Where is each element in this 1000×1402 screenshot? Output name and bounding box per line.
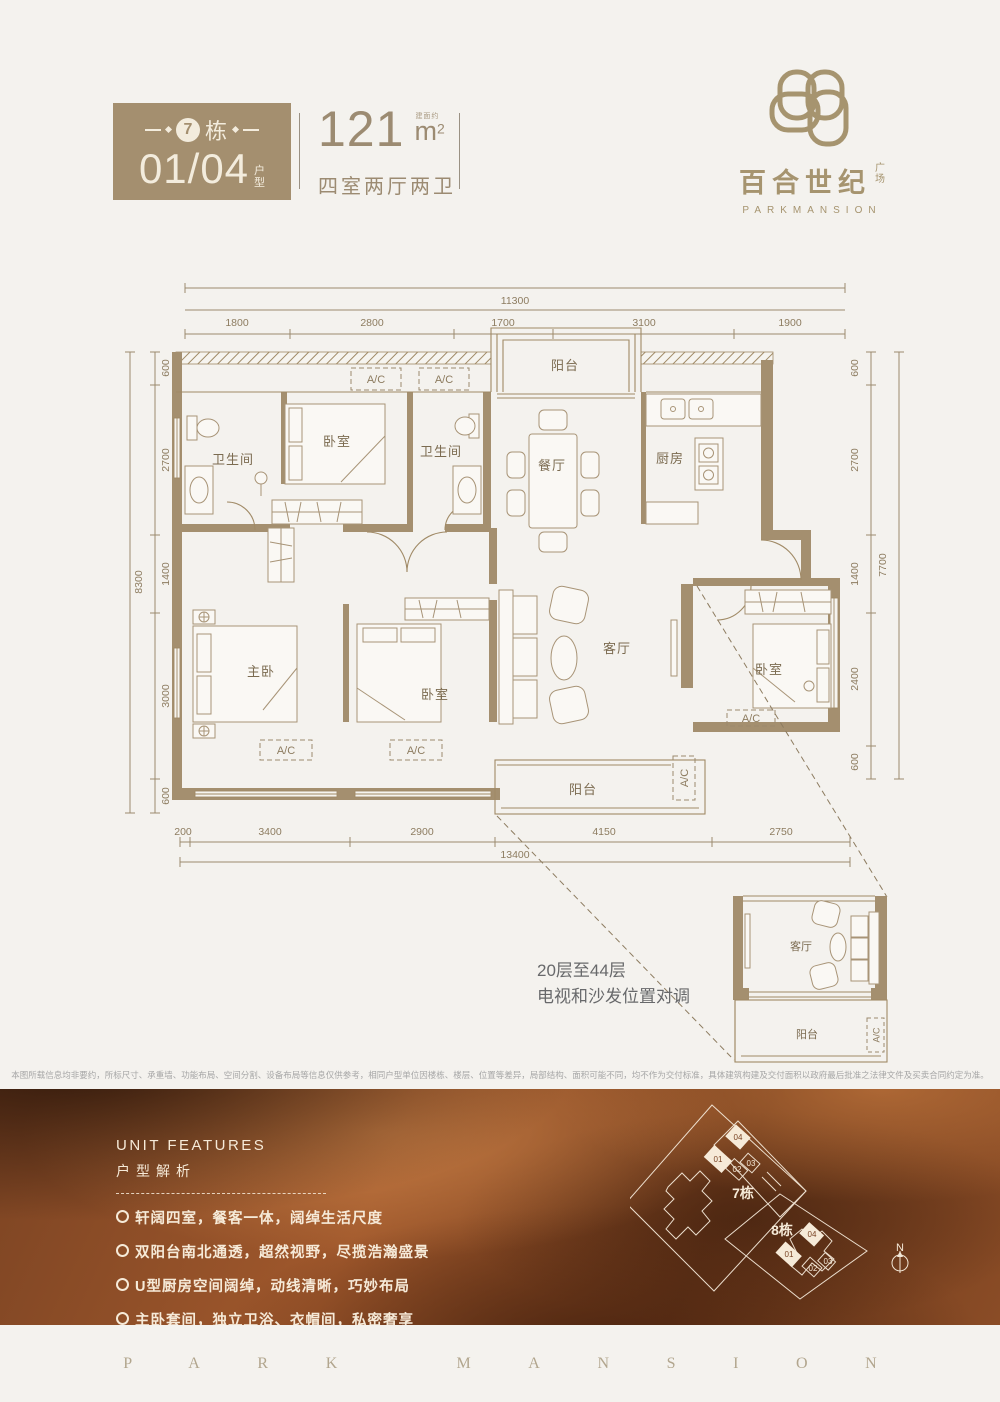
dim-left-3: 1400 [160, 562, 172, 586]
dim-top-1: 1800 [225, 317, 249, 329]
building-number: 7 [176, 118, 200, 142]
feature-text-2: 双阳台南北通透，超然视野，尽揽浩瀚盛景 [135, 1245, 430, 1261]
logo-name-en: PARKMANSION [698, 205, 926, 216]
floor-plan: 11300 1800 2800 1700 3100 1900 8300 600 … [105, 268, 925, 1085]
deco-line-right [243, 129, 259, 131]
header-divider-2 [459, 113, 460, 189]
feature-text-3: U型厨房空间阔绰，动线清晰，巧妙布局 [135, 1279, 410, 1295]
dim-top-3: 1700 [491, 317, 515, 329]
living-furniture [499, 585, 677, 726]
unit-code: 01/04 [139, 148, 249, 190]
ac-label-master: A/C [277, 745, 295, 757]
room-living: 客厅 [603, 641, 631, 656]
bed-mid [357, 624, 441, 722]
inset-plan: 客厅 阳台 A/C [733, 896, 887, 1062]
ac-label-bedmid: A/C [407, 745, 425, 757]
ac-label-top2: A/C [435, 374, 453, 386]
room-dining: 餐厅 [538, 458, 566, 473]
dim-left-1: 600 [160, 359, 172, 377]
footer: PARK MANSION [0, 1325, 1000, 1402]
feature-item-3: U型厨房空间阔绰，动线清晰，巧妙布局 [116, 1275, 430, 1296]
room-bath1: 卫生间 [212, 452, 254, 467]
features-block: UNIT FEATURES 户型解析 轩阔四室，餐客一体，阔绰生活尺度 双阳台南… [116, 1137, 430, 1330]
north-indicator: N [892, 1242, 908, 1273]
dim-top-5: 1900 [778, 317, 802, 329]
unit-7-04-label: 04 [734, 1133, 743, 1142]
logo-knot-icon [766, 68, 858, 150]
features-title-en: UNIT FEATURES [116, 1137, 430, 1154]
header-divider-1 [299, 113, 300, 189]
dim-right-4: 2400 [849, 667, 861, 691]
dim-left-4: 3000 [160, 684, 172, 708]
deco-line-left [145, 129, 161, 131]
unit-7-03-label: 03 [747, 1159, 756, 1168]
dim-bottom-4: 4150 [592, 826, 616, 838]
ac-label-top1: A/C [367, 374, 385, 386]
building-7-label: 7栋 [732, 1185, 754, 1201]
ac-label-bedright: A/C [742, 713, 760, 725]
highlighted-units [704, 1124, 824, 1267]
bathroom2-fixtures [453, 414, 481, 514]
building-8-label: 8栋 [771, 1222, 793, 1238]
dim-left-2: 2700 [160, 448, 172, 472]
compound-7-outline [630, 1105, 806, 1291]
dining-set [507, 410, 599, 552]
unit-code-row: 01/04 户型 [139, 148, 265, 190]
area-unit-wrap: 建面约 m2 [414, 118, 444, 145]
inset-note-line1: 20层至44层 [537, 961, 626, 980]
logo-suffix: 广场 [875, 163, 885, 185]
deco-dot-right [232, 126, 239, 133]
dim-right-1: 600 [849, 359, 861, 377]
ac-label-balcony: A/C [679, 769, 691, 787]
room-bed-mid: 卧室 [421, 687, 449, 702]
dim-bottom-2: 3400 [258, 826, 282, 838]
unit-7-02-label: 02 [733, 1165, 742, 1174]
area-block: 121 建面约 m2 四室两厅两卫 [318, 104, 458, 199]
room-bed-right: 卧室 [755, 662, 783, 677]
dim-top-2: 2800 [360, 317, 384, 329]
room-balcony-top: 阳台 [551, 358, 579, 373]
unit-8-04-label: 04 [808, 1230, 817, 1239]
building-suffix: 栋 [205, 114, 228, 146]
room-balcony-bottom: 阳台 [569, 782, 597, 797]
bullet-icon [116, 1278, 129, 1291]
dimension-lines [125, 283, 904, 867]
building-footprint-left [664, 1171, 712, 1239]
dim-right-total: 7700 [877, 553, 889, 577]
features-title-zh: 户型解析 [116, 1161, 430, 1181]
feature-item-1: 轩阔四室，餐客一体，阔绰生活尺度 [116, 1207, 430, 1228]
dim-bottom-1: 200 [174, 826, 192, 838]
deco-dot-left [165, 126, 172, 133]
area-prefix: 建面约 [415, 111, 439, 121]
inset-room-balcony: 阳台 [796, 1027, 818, 1041]
inset-ac-label: A/C [872, 1027, 882, 1043]
master-bed [193, 610, 297, 738]
bullet-icon [116, 1312, 129, 1325]
unit-8-02-label: 02 [809, 1264, 818, 1273]
room-bed-top: 卧室 [323, 434, 351, 449]
features-divider [116, 1193, 326, 1194]
unit-8-03-label: 03 [824, 1257, 833, 1266]
unit-type-label: 户型 [254, 165, 265, 190]
area-line: 121 建面约 m2 [318, 104, 458, 154]
brand-logo: 百合世纪 广场 PARKMANSION [698, 68, 926, 216]
room-kitchen: 厨房 [656, 451, 684, 466]
area-exponent: 2 [437, 121, 445, 137]
dim-right-3: 1400 [849, 562, 861, 586]
bullet-icon [116, 1244, 129, 1257]
feature-item-2: 双阳台南北通透，超然视野，尽揽浩瀚盛景 [116, 1241, 430, 1262]
dim-left-5: 600 [160, 787, 172, 805]
dim-top-4: 3100 [632, 317, 656, 329]
inset-note: 20层至44层 电视和沙发位置对调 [537, 961, 690, 1006]
dim-top-total: 11300 [501, 295, 530, 307]
compound-8-outline [725, 1194, 867, 1299]
dim-bottom-3: 2900 [410, 826, 434, 838]
footer-brand: PARK MANSION [123, 1355, 934, 1373]
unit-badge: 7 栋 01/04 户型 [113, 103, 291, 200]
bullet-icon [116, 1210, 129, 1223]
site-plan: 04 01 02 03 04 01 02 03 7栋 8栋 N [630, 1099, 930, 1325]
dim-left-total: 8300 [133, 570, 145, 594]
features-band: UNIT FEATURES 户型解析 轩阔四室，餐客一体，阔绰生活尺度 双阳台南… [0, 1089, 1000, 1325]
unit-8-01-label: 01 [785, 1250, 794, 1259]
disclaimer-text: 本图所载信息均非要约，所标尺寸、承重墙、功能布局、空间分割、设备布局等信息仅供参… [0, 1069, 1000, 1081]
area-value: 121 [318, 104, 404, 154]
inset-furniture [745, 899, 879, 991]
poster-page: 7 栋 01/04 户型 121 建面约 m2 四室两厅两卫 [0, 0, 1000, 1402]
dim-right-5: 600 [849, 753, 861, 771]
dim-bottom-total: 13400 [500, 849, 529, 861]
dim-bottom-5: 2750 [769, 826, 793, 838]
inset-note-line2: 电视和沙发位置对调 [537, 987, 690, 1006]
room-master: 主卧 [247, 664, 275, 679]
dim-right-2: 2700 [849, 448, 861, 472]
unit-7-01-label: 01 [714, 1155, 723, 1164]
layout-text: 四室两厅两卫 [318, 170, 458, 199]
logo-name-cn: 百合世纪 [739, 161, 871, 200]
inset-room-living: 客厅 [790, 939, 812, 953]
room-bath2: 卫生间 [420, 444, 462, 459]
feature-text-1: 轩阔四室，餐客一体，阔绰生活尺度 [135, 1211, 383, 1227]
building-row: 7 栋 [145, 114, 259, 146]
